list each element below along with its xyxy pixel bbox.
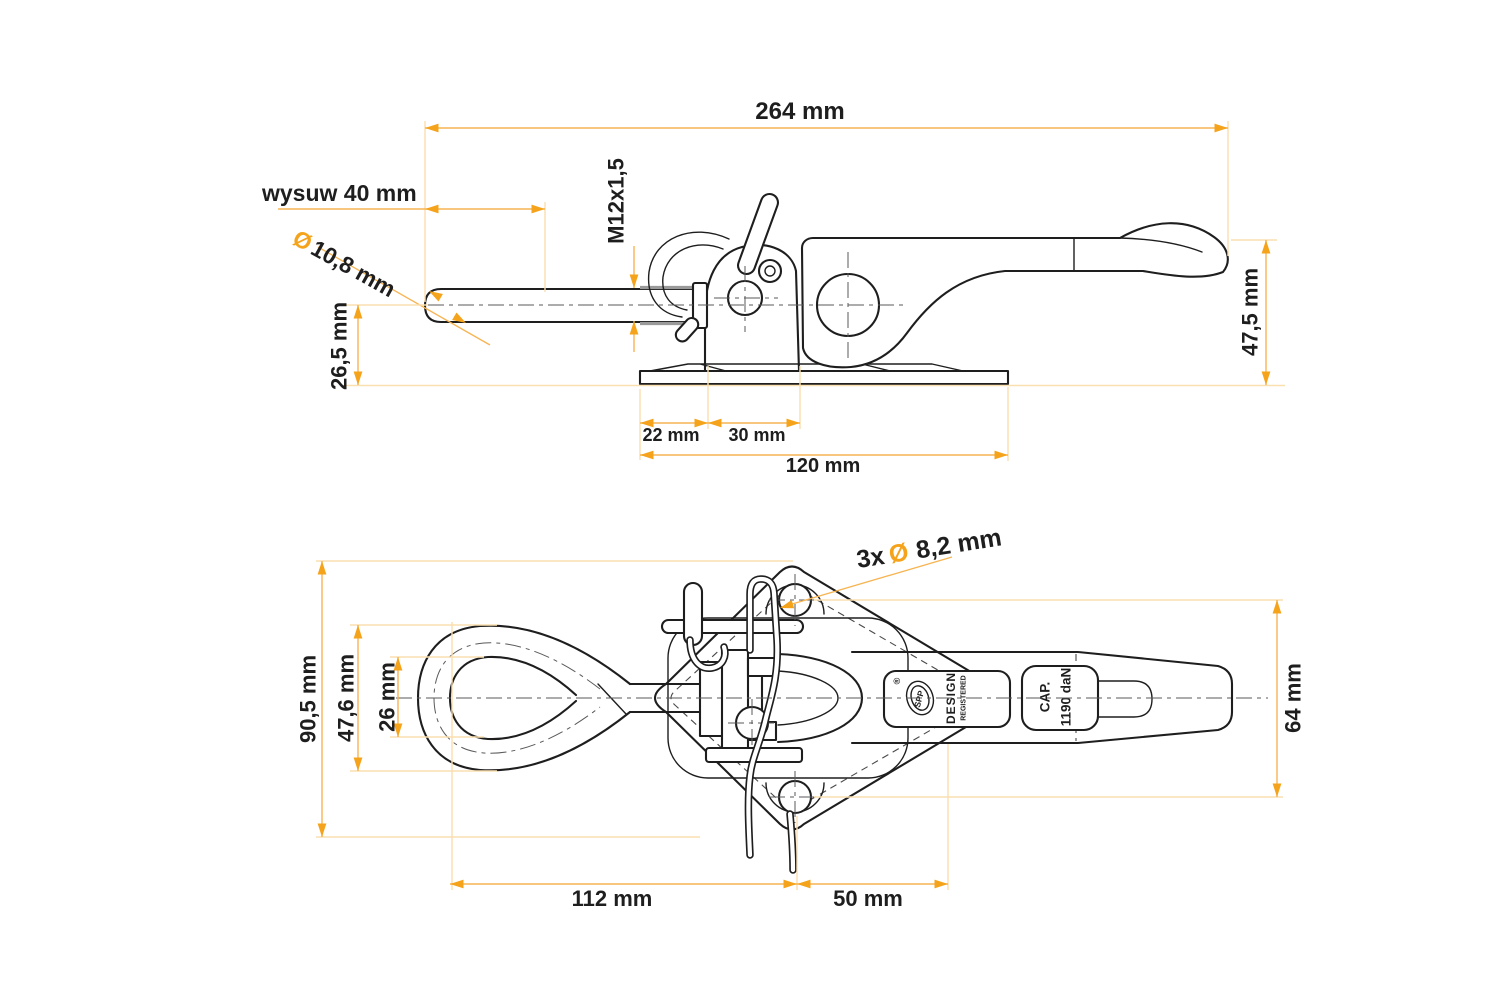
eye-weld-slash <box>598 684 626 714</box>
clamp-step-top <box>748 658 776 676</box>
handle-lever-side <box>802 223 1228 367</box>
dim-lever-span-label: 64 mm <box>1281 663 1306 733</box>
stamp-cap-value: 1190 daN <box>1059 668 1074 727</box>
dim-stroke-label: wysuw 40 mm <box>261 180 417 206</box>
dim-overall-length-label: 264 mm <box>755 98 844 125</box>
reg-mark: ® <box>892 677 902 684</box>
dim-rod-diameter-label: Ø10,8 mm <box>289 225 400 303</box>
side-view-geometry <box>398 192 1228 384</box>
pin-base-circle <box>759 260 781 282</box>
latch-dimension-drawing: 264 mm wysuw 40 mm Ø10,8 mm M12x1,5 <box>0 0 1500 1000</box>
dim-eye-inner-label: 26 mm <box>375 662 400 732</box>
dim-eye-outer-label: 47,6 mm <box>334 654 359 742</box>
side-view: 264 mm wysuw 40 mm Ø10,8 mm M12x1,5 <box>261 98 1285 477</box>
dim-eye-inner: 26 mm <box>375 657 485 737</box>
dim-plate-width-label: 90,5 mm <box>296 655 321 743</box>
dim-hole-spacing-label: 30 mm <box>728 425 785 445</box>
dim-eye-to-hole-label: 112 mm <box>572 886 653 911</box>
dim-hole-to-end-label: 50 mm <box>833 886 903 911</box>
dim-axis-height-label: 26,5 mm <box>327 302 352 390</box>
technical-drawing-page: 264 mm wysuw 40 mm Ø10,8 mm M12x1,5 <box>0 0 1500 1000</box>
dim-overall-height: 47,5 mm <box>1231 240 1277 385</box>
base-plate-side <box>640 371 1008 384</box>
dim-eye-outer: 47,6 mm <box>334 625 498 771</box>
plan-view-geometry: SPP ® DESIGN REGISTERED CAP. 1190 daN <box>396 567 1268 871</box>
dim-hole-offset-label: 22 mm <box>642 425 699 445</box>
spring-anchor-pin <box>684 583 702 645</box>
dim-rod-diameter: Ø10,8 mm <box>289 225 490 345</box>
dim-base-length-label: 120 mm <box>786 455 861 477</box>
stamp-cap-text: CAP. <box>1038 682 1053 713</box>
dim-mount-holes-label: 3xØ8,2 mm <box>855 523 1004 574</box>
dim-overall-height-label: 47,5 mm <box>1238 268 1263 356</box>
plan-view: SPP ® DESIGN REGISTERED CAP. 1190 daN <box>296 523 1306 911</box>
dim-thread-label: M12x1,5 <box>604 158 629 244</box>
